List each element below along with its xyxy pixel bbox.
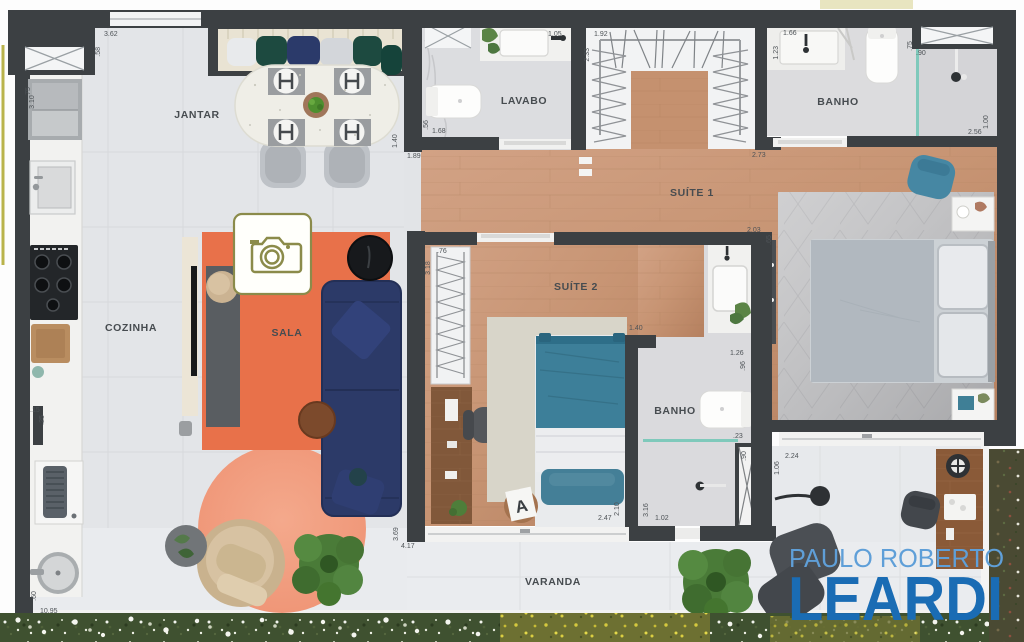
svg-text:2.24: 2.24 (785, 453, 799, 460)
svg-text:10.95: 10.95 (40, 608, 58, 615)
svg-text:JANTAR: JANTAR (174, 109, 219, 121)
svg-text:1.05: 1.05 (548, 31, 562, 38)
svg-text:1.68: 1.68 (432, 128, 446, 135)
svg-text:3.69: 3.69 (393, 527, 400, 541)
svg-text:.56: .56 (423, 120, 430, 130)
svg-text:.90: .90 (916, 50, 926, 57)
svg-text:3.18: 3.18 (425, 261, 432, 275)
svg-text:.76: .76 (437, 248, 447, 255)
svg-text:.15: .15 (30, 407, 40, 414)
svg-text:1.26: 1.26 (730, 350, 744, 357)
svg-text:LEARDI: LEARDI (788, 565, 1003, 634)
svg-text:.96: .96 (740, 361, 747, 371)
svg-text:.23: .23 (733, 433, 743, 440)
svg-text:.58: .58 (95, 47, 102, 57)
svg-text:.60: .60 (31, 591, 38, 601)
svg-text:BANHO: BANHO (817, 96, 859, 108)
svg-text:BANHO: BANHO (654, 405, 696, 417)
svg-text:2.47: 2.47 (598, 515, 612, 522)
svg-text:SUÍTE 1: SUÍTE 1 (670, 186, 714, 199)
svg-text:3.10: 3.10 (29, 95, 36, 109)
svg-text:1.06: 1.06 (774, 461, 781, 475)
svg-text:.65: .65 (766, 235, 773, 245)
svg-text:4.17: 4.17 (401, 543, 415, 550)
svg-text:2.03: 2.03 (747, 227, 761, 234)
svg-text:1.40: 1.40 (392, 134, 399, 148)
svg-text:2.10: 2.10 (614, 502, 621, 516)
svg-text:3.62: 3.62 (104, 31, 118, 38)
svg-text:.25: .25 (39, 415, 46, 425)
svg-text:1.23: 1.23 (773, 46, 780, 60)
svg-text:1.02: 1.02 (655, 515, 669, 522)
svg-text:1.89: 1.89 (407, 153, 421, 160)
svg-text:1.40: 1.40 (629, 325, 643, 332)
svg-text:.90: .90 (741, 451, 748, 461)
svg-text:COZINHA: COZINHA (105, 322, 157, 334)
svg-text:1.92: 1.92 (594, 31, 608, 38)
svg-text:SUÍTE 2: SUÍTE 2 (554, 280, 598, 293)
svg-text:2.56: 2.56 (968, 129, 982, 136)
svg-text:VARANDA: VARANDA (525, 576, 581, 588)
svg-text:2.33: 2.33 (584, 48, 591, 62)
svg-text:1.00: 1.00 (983, 115, 990, 129)
svg-text:3.16: 3.16 (643, 503, 650, 517)
svg-text:SALA: SALA (272, 327, 303, 339)
svg-text:2.73: 2.73 (752, 152, 766, 159)
svg-text:LAVABO: LAVABO (501, 95, 547, 107)
svg-text:.75: .75 (907, 41, 914, 51)
svg-text:1.66: 1.66 (783, 30, 797, 37)
